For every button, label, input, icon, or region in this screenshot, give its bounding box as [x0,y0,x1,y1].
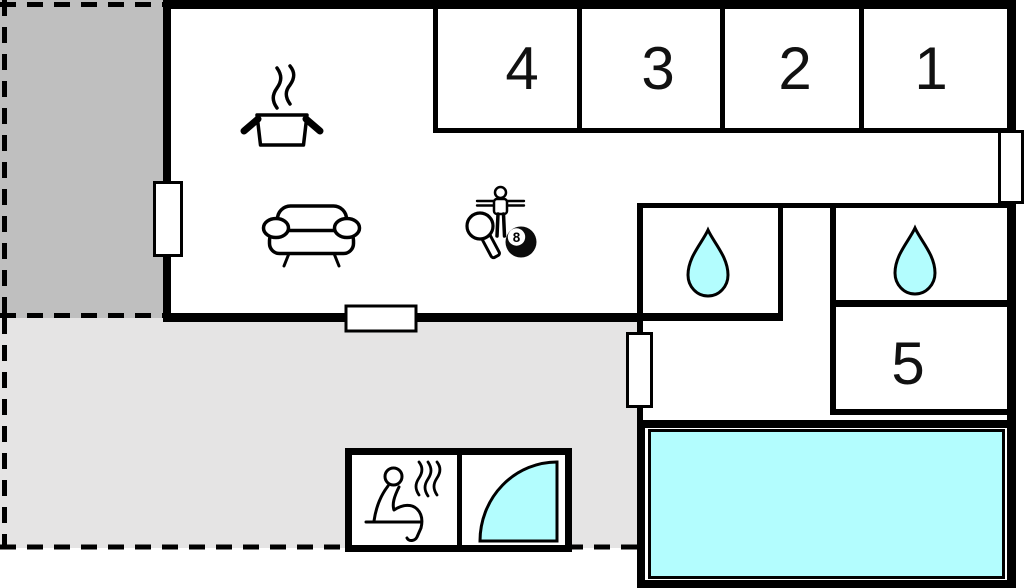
foosball-player-right-leg [504,214,505,236]
bathroom-right-bottom-wall [830,300,1007,307]
sofa-right-armrest [335,219,360,238]
bedroom-3-label: 3 [641,35,674,102]
living-room-bottom-window [346,306,416,331]
bedroom3-2-divider-wall [720,9,725,133]
bathroom-right-left-wall [830,203,836,415]
bedroom2-1-divider-wall [859,9,864,133]
corridor-right-window [1000,132,1023,203]
bedroom4-left-wall [433,9,438,133]
terrace-dark [0,0,163,318]
eight-ball-number: 8 [513,230,521,245]
pool-top-wall [637,420,1016,428]
right-wall [1007,0,1016,588]
pool-left-wall [637,420,645,588]
foosball-player-left-leg [497,214,498,236]
bathroom-left-right-wall [778,203,783,320]
bedroom-4-label: 4 [505,35,538,102]
living-room-left-window [155,183,182,256]
floor-plan-canvas: 4 3 2 1 5 [0,0,1024,588]
foosball-player-torso [494,199,507,214]
sauna-shower-cabin [349,449,569,551]
foosball-player-head [495,187,506,198]
hallway-window [628,334,652,407]
pool-bottom-wall [637,580,1016,588]
billiard-8-ball-icon: 8 [506,227,537,258]
top-wall [163,0,1016,9]
paddle-blade [467,213,493,239]
sofa-left-armrest [264,219,289,238]
floor-plan: 4 3 2 1 5 [0,0,1024,588]
swimming-pool [650,431,1004,578]
bedroom-2-label: 2 [778,35,811,102]
sauna-person-head [385,468,402,485]
left-wall [163,0,171,322]
cabin-divider-wall [457,449,462,551]
corridor-bottom-wall [637,203,1007,208]
room-5-label: 5 [891,330,924,397]
bedroom-1-label: 1 [914,35,947,102]
bathroom-left-bottom-wall [643,313,783,321]
room5-bottom-wall [830,409,1016,415]
bedroom-row-bottom-wall [433,128,1007,133]
bedroom4-3-divider-wall [577,9,582,133]
